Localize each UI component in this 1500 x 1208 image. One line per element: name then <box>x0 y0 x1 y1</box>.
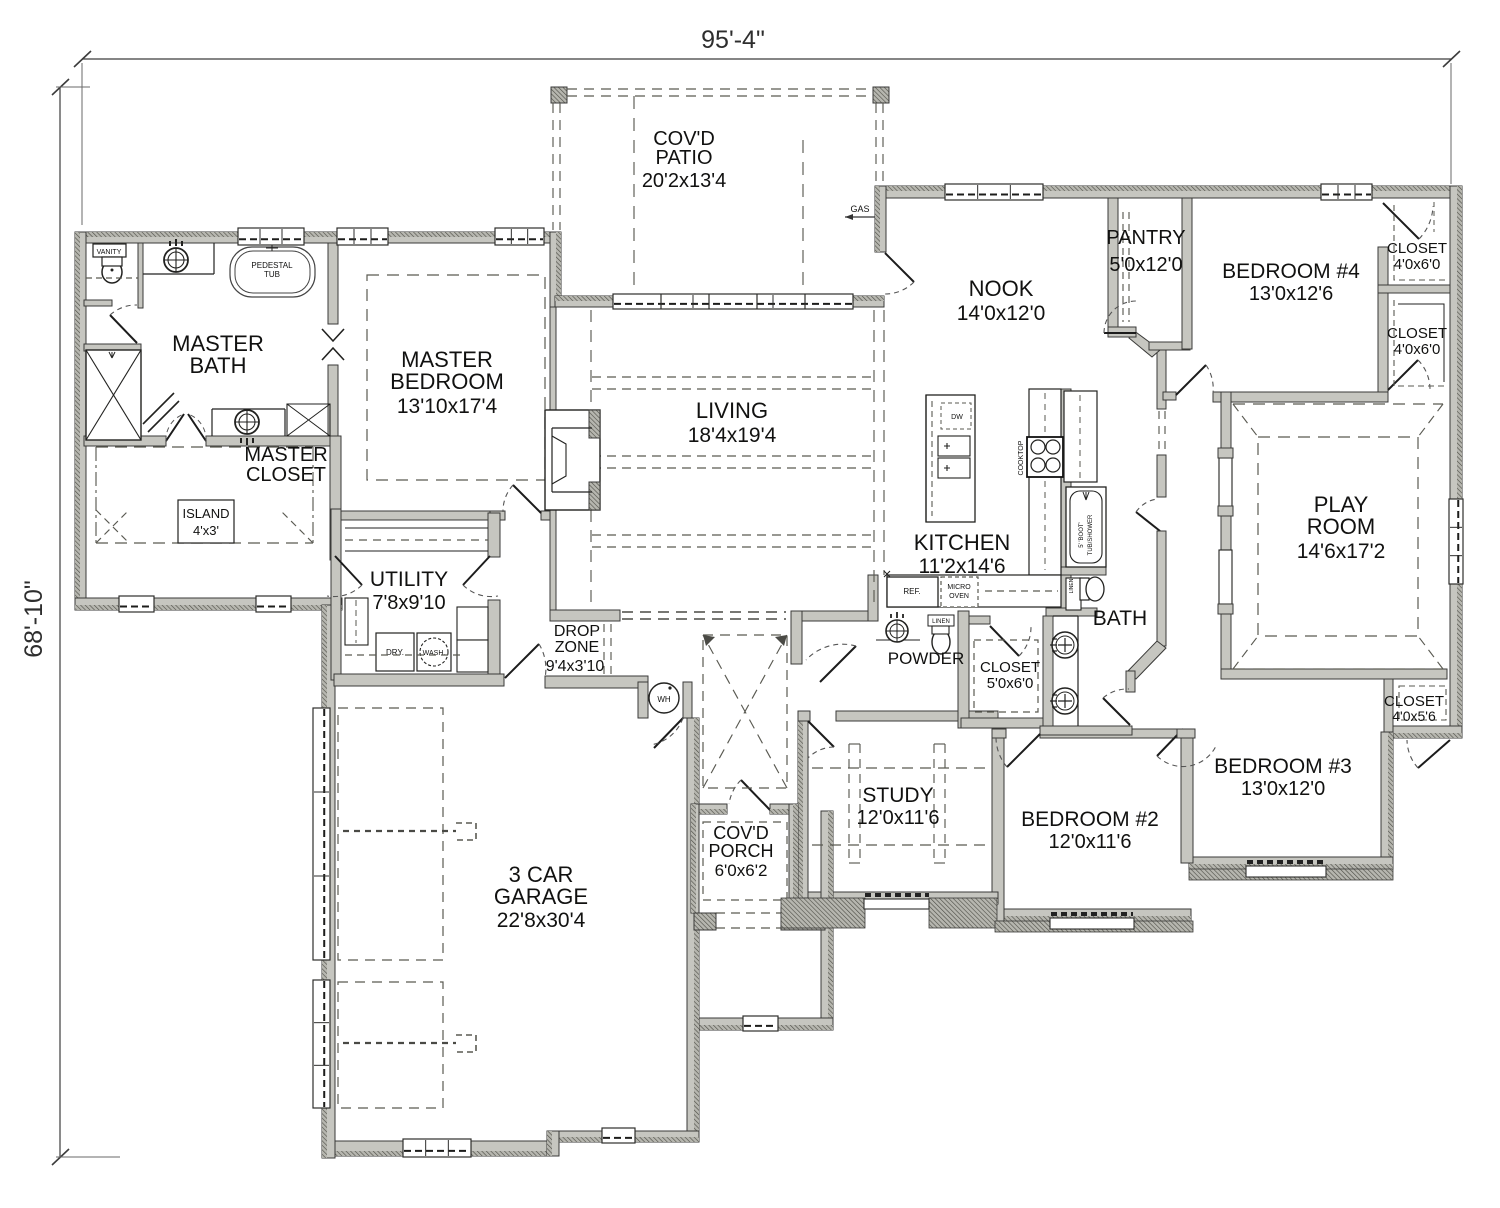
svg-text:LINEN: LINEN <box>932 619 950 625</box>
svg-text:12'0x11'6: 12'0x11'6 <box>857 807 940 829</box>
svg-text:9'4x3'10: 9'4x3'10 <box>546 658 605 675</box>
svg-text:4'x3': 4'x3' <box>193 523 219 538</box>
svg-text:MASTER: MASTER <box>244 444 327 466</box>
svg-text:14'0x12'0: 14'0x12'0 <box>957 302 1046 325</box>
svg-text:KITCHEN: KITCHEN <box>914 530 1011 555</box>
svg-text:5' 'BOOT': 5' 'BOOT' <box>1079 522 1085 547</box>
svg-text:WASH.: WASH. <box>423 650 446 657</box>
svg-text:ISLAND: ISLAND <box>183 506 230 521</box>
svg-text:4'0x6'0: 4'0x6'0 <box>1394 341 1441 358</box>
svg-text:DROP: DROP <box>554 623 600 640</box>
svg-text:DRY.: DRY. <box>386 648 404 657</box>
svg-text:4'0x5'6: 4'0x5'6 <box>1392 708 1436 724</box>
svg-text:CLOSET: CLOSET <box>1387 325 1447 342</box>
svg-text:VANITY: VANITY <box>97 249 122 256</box>
svg-text:BATH: BATH <box>189 353 246 378</box>
svg-text:TUB: TUB <box>264 270 280 279</box>
svg-text:5'0x6'0: 5'0x6'0 <box>987 675 1034 692</box>
svg-text:18'4x19'4: 18'4x19'4 <box>688 424 777 447</box>
svg-text:WH: WH <box>657 695 671 704</box>
svg-text:ZONE: ZONE <box>555 639 599 656</box>
svg-text:CLOSET: CLOSET <box>246 464 326 486</box>
svg-text:12'0x11'6: 12'0x11'6 <box>1049 831 1132 853</box>
svg-text:UTILITY: UTILITY <box>370 568 448 591</box>
svg-text:BEDROOM #3: BEDROOM #3 <box>1214 755 1352 778</box>
svg-text:13'10x17'4: 13'10x17'4 <box>397 395 498 418</box>
svg-text:BEDROOM: BEDROOM <box>390 369 504 394</box>
svg-text:COOKTOP: COOKTOP <box>1018 440 1025 475</box>
svg-text:13'0x12'6: 13'0x12'6 <box>1249 283 1333 305</box>
svg-text:BATH: BATH <box>1093 607 1147 630</box>
svg-text:13'0x12'0: 13'0x12'0 <box>1241 778 1325 800</box>
svg-text:68'-10": 68'-10" <box>20 580 48 658</box>
svg-text:REF.: REF. <box>903 587 920 596</box>
svg-text:20'2x13'4: 20'2x13'4 <box>642 170 726 192</box>
svg-text:GAS: GAS <box>850 204 869 214</box>
svg-text:COV'D: COV'D <box>713 823 768 843</box>
svg-text:MICRO: MICRO <box>947 584 971 591</box>
svg-text:6'0x6'2: 6'0x6'2 <box>715 861 768 880</box>
svg-text:DW: DW <box>951 414 963 421</box>
svg-text:7'8x9'10: 7'8x9'10 <box>372 592 445 614</box>
svg-text:LIVING: LIVING <box>696 398 768 423</box>
svg-text:POWDER: POWDER <box>888 649 965 668</box>
svg-text:BEDROOM #4: BEDROOM #4 <box>1222 260 1360 283</box>
svg-text:CLOSET: CLOSET <box>980 659 1040 676</box>
svg-text:TUB/SHOWER: TUB/SHOWER <box>1088 514 1094 555</box>
svg-text:PANTRY: PANTRY <box>1106 227 1185 249</box>
svg-text:5'0x12'0: 5'0x12'0 <box>1109 254 1182 276</box>
svg-text:NOOK: NOOK <box>969 276 1034 301</box>
svg-text:11'2x14'6: 11'2x14'6 <box>918 555 1005 578</box>
svg-text:PEDESTAL: PEDESTAL <box>251 261 293 270</box>
svg-text:LINEN: LINEN <box>1069 578 1075 593</box>
svg-text:PATIO: PATIO <box>655 147 712 169</box>
svg-text:GARAGE: GARAGE <box>494 884 588 909</box>
svg-text:BEDROOM #2: BEDROOM #2 <box>1021 808 1159 831</box>
svg-text:22'8x30'4: 22'8x30'4 <box>497 909 586 932</box>
svg-text:PORCH: PORCH <box>708 841 773 861</box>
svg-text:OVEN: OVEN <box>949 593 969 600</box>
svg-text:STUDY: STUDY <box>862 784 933 807</box>
svg-text:ROOM: ROOM <box>1307 514 1375 539</box>
svg-text:4'0x6'0: 4'0x6'0 <box>1394 256 1441 273</box>
svg-text:CLOSET: CLOSET <box>1387 240 1447 257</box>
svg-text:95'-4": 95'-4" <box>701 26 765 54</box>
svg-text:14'6x17'2: 14'6x17'2 <box>1297 540 1386 563</box>
